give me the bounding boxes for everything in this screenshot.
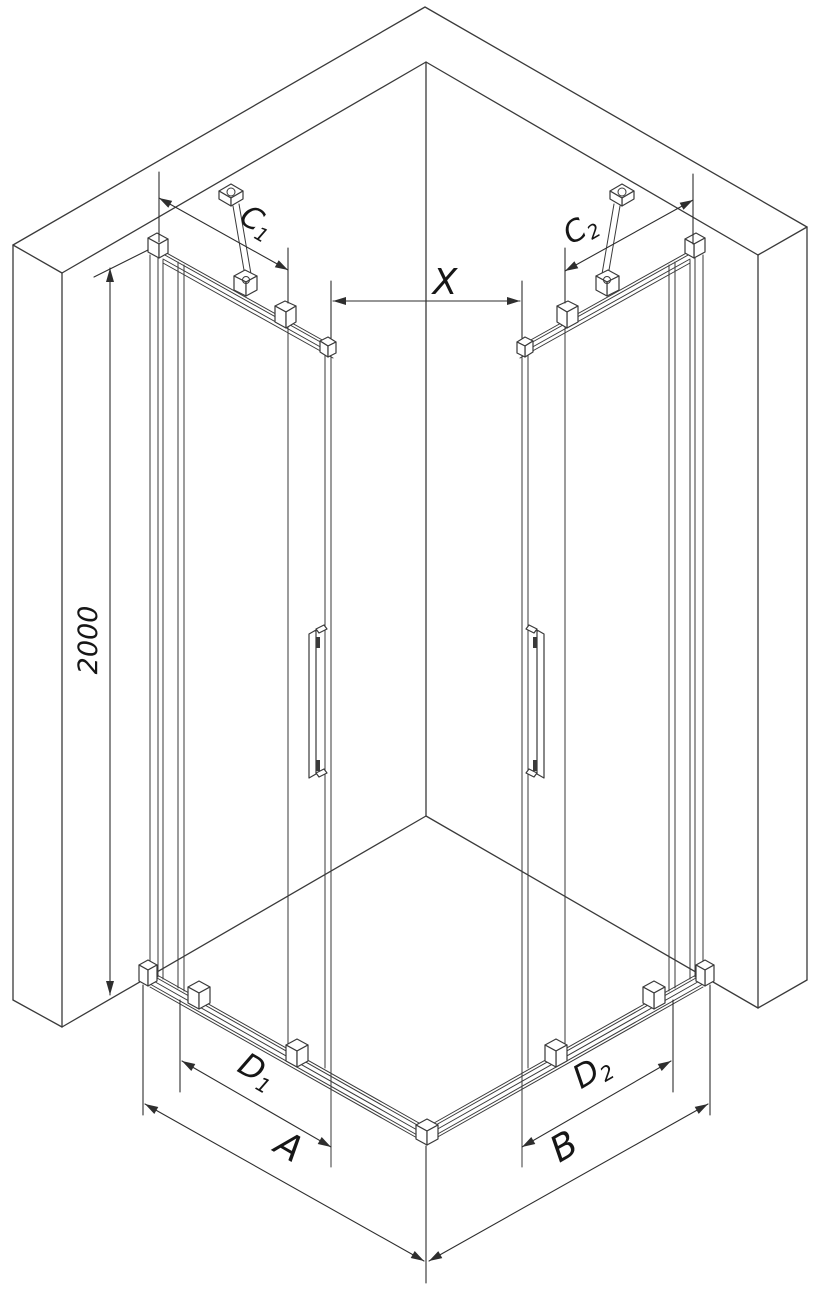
right-profile-top-cap	[685, 233, 705, 258]
right-bottom-wall-bracket	[696, 960, 714, 986]
b-dimension-line	[429, 1104, 708, 1261]
left-bottom-guide-1	[188, 981, 210, 1009]
left-glass-wall	[150, 251, 426, 1167]
dimension-a: A	[143, 985, 426, 1283]
right-upper-roller-clamp	[557, 301, 578, 328]
dimension-label-d2: D2	[566, 1045, 619, 1099]
left-bottom-wall-bracket	[139, 960, 157, 986]
diagram-canvas: 2000 C1 C2 X D1	[0, 0, 821, 1289]
wall-top-outer-edge	[13, 7, 807, 245]
left-profile-top-cap	[148, 233, 168, 258]
dimension-height: 2000	[73, 250, 148, 995]
dimension-label-c2: C2	[557, 205, 605, 254]
right-door-handle	[526, 625, 544, 778]
right-wall-end-top	[758, 227, 807, 255]
right-glass-wall	[427, 251, 703, 1167]
left-wall-end-top	[13, 245, 62, 273]
height-top-tick	[94, 250, 148, 277]
left-upper-roller-clamp	[275, 301, 296, 328]
left-door-top-cap	[320, 337, 336, 357]
dimension-label-height: 2000	[73, 606, 104, 675]
right-top-track	[520, 251, 690, 358]
left-top-track	[163, 251, 333, 358]
shower-enclosure-diagram: 2000 C1 C2 X D1	[0, 0, 821, 1289]
right-bottom-guide-2	[545, 1039, 567, 1067]
dimension-b: B	[429, 985, 710, 1261]
dimension-label-x: X	[431, 262, 459, 303]
right-door-top-cap	[517, 337, 533, 357]
right-wall-end-bottom	[758, 980, 807, 1008]
dimension-label-a: A	[266, 1122, 310, 1171]
left-bottom-guide-2	[286, 1039, 308, 1067]
right-bottom-guide-1	[643, 981, 665, 1009]
a-dimension-line	[145, 1104, 424, 1261]
room-walls	[13, 7, 807, 1027]
dimension-label-b: B	[543, 1123, 585, 1171]
left-wall-end-bottom	[13, 1000, 62, 1027]
tray-corner-bracket	[416, 1119, 438, 1145]
left-door-handle	[309, 625, 327, 778]
dimension-label-d1: D1	[230, 1045, 283, 1099]
